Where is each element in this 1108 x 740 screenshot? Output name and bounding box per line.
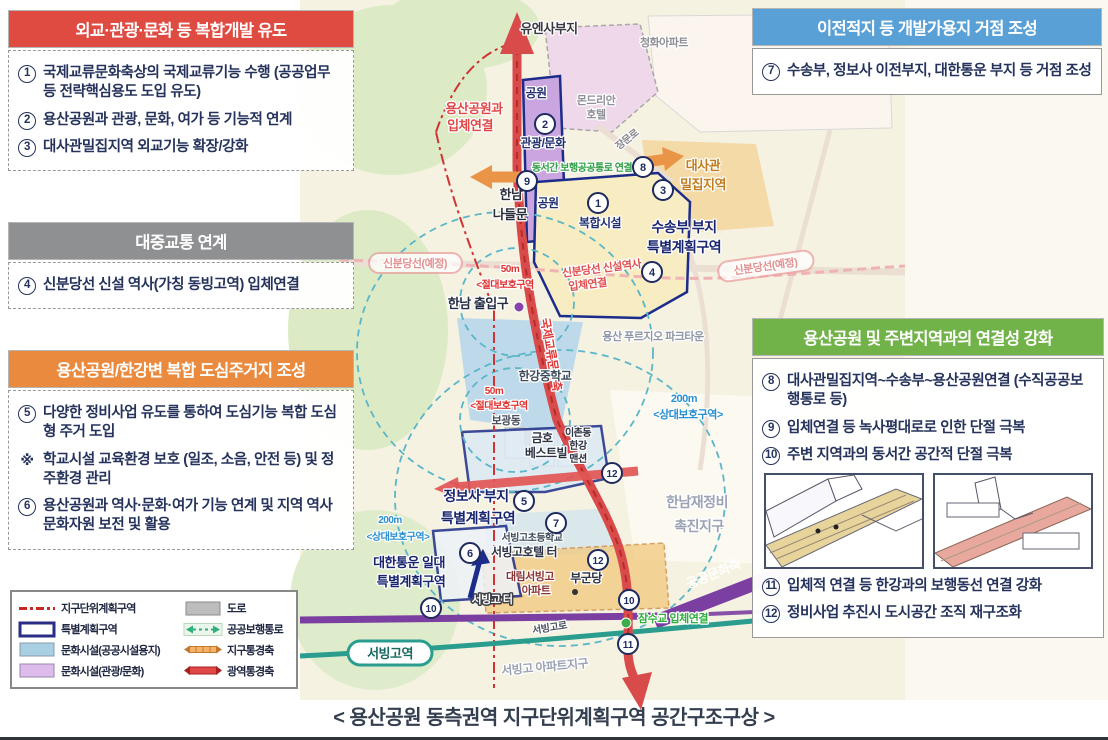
map-label: 신분당선(예정) (383, 256, 448, 270)
panel-connectivity-body: 8대사관밀집지역~수송부~용산공원연결 (수직공공보행통로 등)9입체연결 등 … (752, 358, 1104, 638)
map-label: 서빙고 터 (471, 592, 512, 606)
item-number-badge: 12 (762, 605, 780, 623)
legend-label: 특별계획구역 (61, 621, 179, 637)
panel-item: 8대사관밀집지역~수송부~용산공원연결 (수직공공보행통로 등) (762, 372, 1094, 411)
map-label: 한강중학교 (519, 368, 572, 383)
map-label: 특별계획구역 (377, 574, 446, 589)
item-number-badge: 2 (18, 112, 36, 130)
map-label: 서빙고역 (367, 646, 413, 661)
map-label: 밀집지역 (680, 177, 726, 192)
map-label: 한남 (500, 187, 523, 202)
map-label: 맨션 (569, 452, 587, 465)
item-number-badge: 4 (18, 277, 36, 295)
panel-item: 1국제교류문화축상의 국제교류기능 수행 (공공업무 등 전략핵심용도 도입 유… (18, 64, 344, 103)
svg-text:6: 6 (467, 548, 473, 560)
item-text: 신분당선 신설 역사(가칭 동빙고역) 입체연결 (43, 276, 299, 295)
panel-diplomacy-body: 1국제교류문화축상의 국제교류기능 수행 (공공업무 등 전략핵심용도 도입 유… (8, 50, 354, 171)
map-label: 호텔 (586, 107, 606, 121)
legend-label: 광역통경축 (227, 663, 291, 679)
panel-item: 5다양한 정비사업 유도를 통하여 도심기능 복합 도심형 주거 도입 (18, 404, 344, 443)
map-marker-8: 8 (633, 157, 653, 177)
map-label: <절대보호구역 (476, 278, 534, 291)
panel-diplomacy-title: 외교·관광·문화 등 복합개발 유도 (8, 10, 354, 48)
svg-text:7: 7 (553, 518, 559, 530)
panel-item: ※학교시설 교육환경 보호 (일조, 소음, 안전 등) 및 정주환경 관리 (18, 451, 344, 490)
item-text: 입체적 연결 등 한강과의 보행동선 연결 강화 (787, 577, 1042, 596)
svg-text:12: 12 (606, 469, 618, 480)
item-number-badge: 11 (762, 578, 780, 596)
map-label: 대한통운 일대 (373, 555, 445, 570)
map-label: 유엔사부지 (520, 21, 577, 36)
legend-label: 도로 (227, 600, 291, 616)
svg-text:4: 4 (649, 267, 656, 279)
item-text: 국제교류문화축상의 국제교류기능 수행 (공공업무 등 전략핵심용도 도입 유도… (43, 64, 344, 103)
map-label: 정보사 부지 (443, 488, 508, 504)
panel-relocation-body: 7수송부, 정보사 이전부지, 대한통운 부지 등 거점 조성 (752, 48, 1102, 95)
item-text: 대사관밀집지역~수송부~용산공원연결 (수직공공보행통로 등) (787, 372, 1094, 411)
item-text: 수송부, 정보사 이전부지, 대한통운 부지 등 거점 조성 (787, 62, 1091, 81)
map-label: 복합시설 (579, 215, 622, 230)
map-label: 200m (378, 515, 402, 526)
map-marker-10: 10 (421, 598, 441, 618)
linkage-diagram-rail (764, 473, 924, 569)
legend-symbol-dash-red (17, 600, 57, 617)
item-text: 대사관밀집지역 외교기능 확장/강화 (43, 138, 248, 157)
panel-housing-title: 용산공원/한강변 복합 도심주거지 조성 (8, 350, 354, 388)
svg-text:8: 8 (640, 162, 646, 174)
map-label: 특별계획구역 (647, 239, 721, 255)
panel-relocation-title: 이전적지 등 개발가용지 거점 조성 (752, 8, 1102, 46)
svg-text:1: 1 (595, 198, 601, 210)
panel-item: 7수송부, 정보사 이전부지, 대한통운 부지 등 거점 조성 (762, 62, 1092, 81)
legend-symbol-rect-violet (17, 662, 57, 679)
map-label: <절대보호구역 (470, 399, 528, 412)
map-label: 50m (485, 386, 504, 397)
item-number-badge: 10 (762, 447, 780, 465)
legend-label: 문화시설(공공시설용지) (61, 642, 179, 658)
panel-connectivity-items-after: 11입체적 연결 등 한강과의 보행동선 연결 강화12정비사업 추진시 도시공… (756, 577, 1100, 624)
item-text: 다양한 정비사업 유도를 통하여 도심기능 복합 도심형 주거 도입 (43, 404, 344, 443)
item-number-badge: ※ (18, 452, 36, 470)
svg-text:10: 10 (623, 596, 635, 607)
map-marker-1: 1 (588, 193, 608, 213)
legend-label: 지구단위계획구역 (61, 600, 179, 616)
map-label: <상대보호구역> (653, 407, 723, 421)
item-text: 입체연결 등 녹사평대로로 인한 단절 극복 (787, 419, 1025, 438)
map-label: 잠수교 입체연결 (638, 611, 708, 625)
map-marker-12: 12 (588, 550, 608, 570)
legend-symbol-band-red (183, 662, 223, 679)
panel-item: 3대사관밀집지역 외교기능 확장/강화 (18, 138, 344, 157)
map-label: 한남 출입구 (448, 296, 509, 311)
map-label: 청화아파트 (640, 35, 688, 49)
map-label: 동서간 보행공공통로 연결 (532, 161, 633, 174)
map-marker-3: 3 (653, 180, 673, 200)
map-marker-6: 6 (460, 543, 480, 563)
panel-housing: 용산공원/한강변 복합 도심주거지 조성 5다양한 정비사업 유도를 통하여 도… (8, 350, 354, 550)
map-label: 베스트빌 (525, 445, 568, 460)
panel-transit: 대중교통 연계 4신분당선 신설 역사(가칭 동빙고역) 입체연결 (8, 222, 354, 309)
item-number-badge: 9 (762, 420, 780, 438)
panel-item: 4신분당선 신설 역사(가칭 동빙고역) 입체연결 (18, 276, 344, 295)
map-label: 한강 (569, 439, 588, 452)
map-marker-7: 7 (546, 513, 566, 533)
hannam-entrance-dot (514, 302, 524, 312)
map-label: 200m (671, 393, 698, 405)
map-label: 공원 (525, 86, 546, 100)
map-label: 대사관 (686, 158, 721, 173)
legend-symbol-arrow-green (183, 621, 223, 638)
item-number-badge: 8 (762, 373, 780, 391)
map-marker-11: 11 (618, 634, 638, 654)
item-number-badge: 1 (18, 65, 36, 83)
svg-text:9: 9 (524, 176, 530, 188)
map-label: 서빙고호텔 터 (491, 544, 557, 559)
panel-connectivity: 용산공원 및 주변지역과의 연결성 강화 8대사관밀집지역~수송부~용산공원연결… (752, 318, 1104, 638)
panel-transit-title: 대중교통 연계 (8, 222, 354, 260)
item-text: 주변 지역과의 동서간 공간적 단절 극복 (787, 446, 1012, 465)
map-label: 촉진지구 (674, 518, 724, 534)
panel-item: 6용산공원과 역사·문화·여가 기능 연계 및 지역 역사문화자원 보전 및 활… (18, 497, 344, 536)
panel-connectivity-items: 8대사관밀집지역~수송부~용산공원연결 (수직공공보행통로 등)9입체연결 등 … (756, 372, 1100, 465)
panel-item: 10주변 지역과의 동서간 공간적 단절 극복 (762, 446, 1094, 465)
map-label: 용산공원과 (445, 101, 503, 116)
legend-symbol-rect-gray (183, 600, 223, 617)
map-label: 관광/문화 (521, 135, 566, 150)
legend-symbol-rect-navy (17, 621, 57, 638)
svg-text:11: 11 (623, 640, 634, 651)
svg-text:3: 3 (660, 185, 666, 197)
item-number-badge: 3 (18, 139, 36, 157)
panel-item: 12정비사업 추진시 도시공간 조직 재구조화 (762, 604, 1094, 623)
panel-item: 9입체연결 등 녹사평대로로 인한 단절 극복 (762, 419, 1094, 438)
legend-label: 문화시설(관광/문화) (61, 663, 179, 679)
panel-relocation: 이전적지 등 개발가용지 거점 조성 7수송부, 정보사 이전부지, 대한통운 … (752, 8, 1102, 95)
map-marker-5: 5 (514, 491, 534, 511)
panel-diplomacy: 외교·관광·문화 등 복합개발 유도 1국제교류문화축상의 국제교류기능 수행 … (8, 10, 354, 171)
map-label: 금호 (531, 431, 553, 445)
legend-symbol-band-orange (183, 641, 223, 658)
linkage-diagram-deck (933, 473, 1093, 569)
map-label: <상대보호구역> (367, 530, 431, 543)
map-label: 공원 (537, 196, 558, 210)
map-marker-4: 4 (642, 262, 662, 282)
panel-item: 2용산공원과 관광, 문화, 여가 등 기능적 연계 (18, 111, 344, 130)
svg-text:5: 5 (521, 496, 527, 508)
legend-label: 지구통경축 (227, 642, 291, 658)
item-number-badge: 5 (18, 405, 36, 423)
svg-text:10: 10 (425, 604, 437, 615)
legend-label: 공공보행통로 (227, 621, 291, 637)
map-label: 나들문 (493, 207, 528, 222)
svg-text:12: 12 (592, 556, 604, 567)
item-text: 용산공원과 역사·문화·여가 기능 연계 및 지역 역사문화자원 보전 및 활용 (43, 497, 344, 536)
map-label: 용산 푸르지오 파크타운 (602, 329, 704, 343)
map-label: 수송부 부지 (651, 219, 716, 235)
map-marker-2: 2 (535, 114, 555, 134)
item-number-badge: 6 (18, 498, 36, 516)
plan-figure: 유엔사부지청화아파트몬드리안호텔공원용산공원과입체연결관광/문화장문로대사관밀집… (0, 0, 1108, 740)
panel-connectivity-title: 용산공원 및 주변지역과의 연결성 강화 (752, 318, 1104, 356)
legend-symbol-rect-lightblue (17, 641, 57, 658)
map-label: 한남재정비 (666, 494, 728, 510)
map-label: 이촌동 (565, 426, 591, 439)
map-marker-10: 10 (619, 590, 639, 610)
map-label: 입체연결 (447, 118, 493, 133)
panel-housing-body: 5다양한 정비사업 유도를 통하여 도심기능 복합 도심형 주거 도입※학교시설… (8, 390, 354, 550)
map-label: 특별계획구역 (441, 510, 515, 526)
map-label: 대림서빙고 (506, 569, 554, 583)
map-label: 몬드리안 (577, 93, 616, 107)
item-text: 용산공원과 관광, 문화, 여가 등 기능적 연계 (43, 111, 292, 130)
map-label: 부군당 (570, 570, 602, 585)
svg-text:2: 2 (542, 119, 548, 131)
panel-item: 11입체적 연결 등 한강과의 보행동선 연결 강화 (762, 577, 1094, 596)
map-legend: 지구단위계획구역도로특별계획구역공공보행통로문화시설(공공시설용지)지구통경축문… (10, 590, 298, 689)
item-text: 학교시설 교육환경 보호 (일조, 소음, 안전 등) 및 정주환경 관리 (43, 451, 344, 490)
map-marker-12: 12 (602, 463, 622, 483)
panel-transit-body: 4신분당선 신설 역사(가칭 동빙고역) 입체연결 (8, 262, 354, 309)
jamsugyo-link-dot (621, 618, 631, 628)
map-label: 아파트 (522, 583, 551, 597)
map-label: 보광동 (492, 414, 521, 427)
linkage-diagrams (760, 473, 1096, 569)
item-text: 정비사업 추진시 도시공간 조직 재구조화 (787, 604, 1022, 623)
item-number-badge: 7 (762, 63, 780, 81)
map-label: 50m (501, 264, 520, 275)
map-marker-9: 9 (517, 171, 537, 191)
figure-caption: < 용산공원 동측권역 지구단위계획구역 공간구조구상 > (0, 701, 1108, 730)
